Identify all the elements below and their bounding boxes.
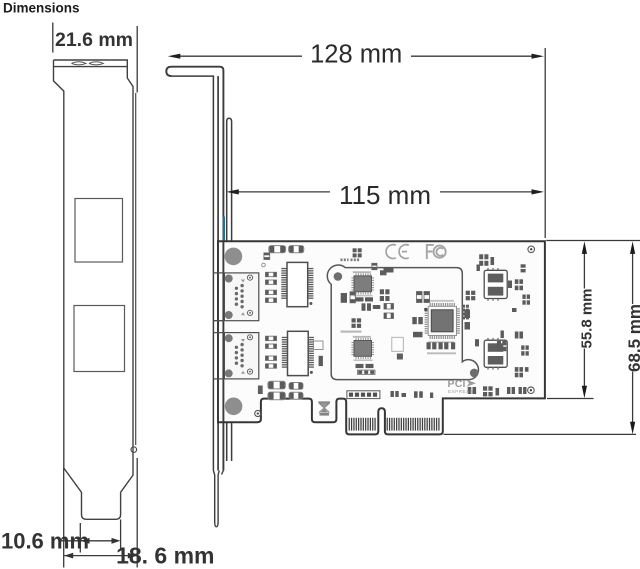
svg-text:21.6 mm: 21.6 mm xyxy=(55,29,133,51)
svg-text:18. 6 mm: 18. 6 mm xyxy=(116,543,214,569)
svg-text:Dimensions: Dimensions xyxy=(3,1,80,16)
svg-text:68.5 mm: 68.5 mm xyxy=(625,304,640,372)
svg-text:115 mm: 115 mm xyxy=(339,180,431,210)
svg-text:EXPRESS: EXPRESS xyxy=(448,389,473,394)
svg-text:128 mm: 128 mm xyxy=(310,40,402,68)
svg-text:10.6 mm: 10.6 mm xyxy=(1,528,89,553)
svg-text:55.8 mm: 55.8 mm xyxy=(578,288,595,348)
